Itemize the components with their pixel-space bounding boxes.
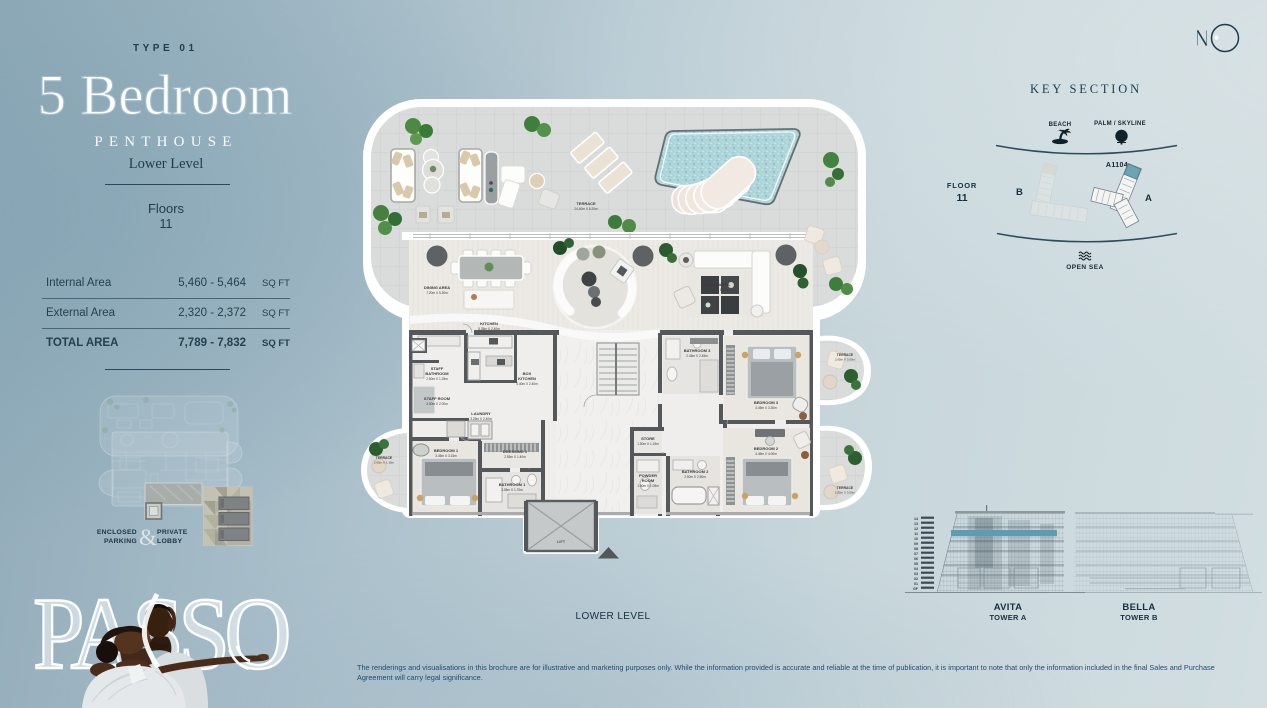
svg-text:04: 04	[914, 567, 918, 571]
svg-text:13: 13	[914, 522, 918, 526]
svg-text:4.45m X 3.30m: 4.45m X 3.30m	[755, 406, 777, 410]
svg-text:KITCHEN: KITCHEN	[518, 376, 536, 381]
svg-text:LIFT: LIFT	[557, 539, 566, 544]
svg-text:3.00m X 2.00m: 3.00m X 2.00m	[426, 402, 448, 406]
svg-text:LAUNDRY: LAUNDRY	[471, 411, 491, 416]
svg-text:TERRACE: TERRACE	[837, 353, 854, 357]
svg-text:BEDROOM 3: BEDROOM 3	[754, 400, 779, 405]
svg-text:08: 08	[914, 547, 918, 551]
svg-text:DRESSING 1: DRESSING 1	[503, 449, 528, 454]
svg-text:2.55m X 1.40m: 2.55m X 1.40m	[504, 455, 526, 459]
svg-text:09: 09	[914, 542, 918, 546]
svg-text:LIVING AREA: LIVING AREA	[704, 282, 730, 287]
svg-text:03: 03	[914, 572, 918, 576]
svg-text:1.50m X 1.15m: 1.50m X 1.15m	[637, 442, 659, 446]
svg-text:05: 05	[914, 562, 918, 566]
svg-text:BATHROOM 2: BATHROOM 2	[682, 469, 709, 474]
svg-text:BATHROOM 1: BATHROOM 1	[499, 482, 526, 487]
svg-text:3.05m X 1.70m: 3.05m X 1.70m	[501, 488, 523, 492]
svg-text:4.40m X 2.40m: 4.40m X 2.40m	[516, 382, 538, 386]
svg-text:12: 12	[914, 527, 918, 531]
svg-text:ROOM: ROOM	[642, 478, 655, 483]
svg-text:2.50m X 2.50m: 2.50m X 2.50m	[684, 475, 706, 479]
svg-text:01: 01	[914, 582, 918, 586]
svg-text:2.05m X 3.50m: 2.05m X 3.50m	[835, 358, 856, 362]
svg-text:02: 02	[914, 577, 918, 581]
svg-text:7.20m X 5.20m: 7.20m X 5.20m	[426, 291, 448, 295]
svg-text:TERRACE: TERRACE	[376, 456, 393, 460]
svg-text:TERRACE: TERRACE	[837, 486, 854, 490]
svg-text:5.35m X 2.40m: 5.35m X 2.40m	[478, 327, 500, 331]
svg-text:3.45m X 3.15m: 3.45m X 3.15m	[435, 454, 457, 458]
svg-text:10: 10	[914, 537, 918, 541]
svg-text:1.50m X 1.05m: 1.50m X 1.05m	[637, 484, 659, 488]
svg-text:BATHROOM 3: BATHROOM 3	[684, 348, 711, 353]
svg-text:4.45m X 4.00m: 4.45m X 4.00m	[755, 452, 777, 456]
svg-text:STAFF ROOM: STAFF ROOM	[424, 396, 451, 401]
svg-text:14: 14	[914, 517, 918, 521]
svg-text:11: 11	[914, 532, 918, 536]
svg-text:BEDROOM 2: BEDROOM 2	[754, 446, 779, 451]
svg-text:2.50m X 1.25m: 2.50m X 1.25m	[426, 377, 448, 381]
svg-text:07: 07	[914, 552, 918, 556]
svg-text:BATHROOM: BATHROOM	[425, 371, 449, 376]
svg-text:24.40m X 6.20m: 24.40m X 6.20m	[574, 207, 598, 211]
svg-text:GF: GF	[913, 587, 919, 591]
svg-text:KITCHEN: KITCHEN	[480, 321, 498, 326]
svg-text:TERRACE: TERRACE	[576, 201, 596, 206]
svg-text:2.05m X 1.15m: 2.05m X 1.15m	[374, 461, 395, 465]
svg-text:STORE: STORE	[641, 436, 655, 441]
svg-text:06: 06	[914, 557, 918, 561]
svg-text:2.05m X 3.50m: 2.05m X 3.50m	[835, 491, 856, 495]
svg-text:DINING AREA: DINING AREA	[424, 285, 450, 290]
svg-text:3.25m X 2.40m: 3.25m X 2.40m	[470, 417, 492, 421]
svg-text:2.45m X 2.45m: 2.45m X 2.45m	[686, 354, 708, 358]
svg-text:BEDROOM 1: BEDROOM 1	[434, 448, 459, 453]
svg-text:12.70m X 8.45m: 12.70m X 8.45m	[705, 288, 729, 292]
